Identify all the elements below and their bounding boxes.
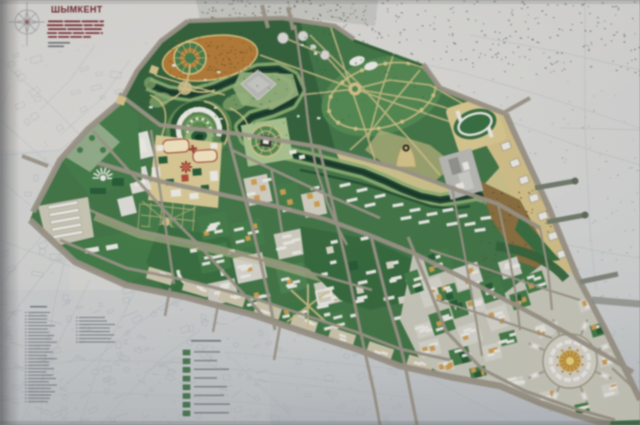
svg-text:ШЫМКЕНТ: ШЫМКЕНТ (51, 5, 103, 15)
